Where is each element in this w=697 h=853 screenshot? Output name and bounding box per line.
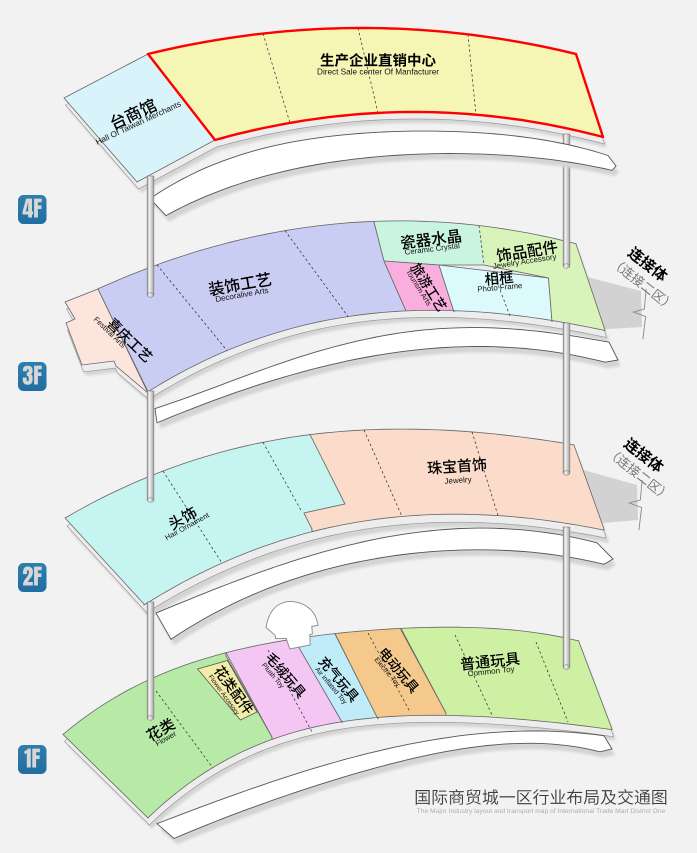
svg-text:Jewelry: Jewelry	[444, 475, 472, 486]
svg-text:Direct Sale center Of Manfactu: Direct Sale center Of Manfacturer	[317, 68, 439, 77]
svg-text:The Major Industry layout and: The Major Industry layout and transport …	[417, 808, 666, 815]
